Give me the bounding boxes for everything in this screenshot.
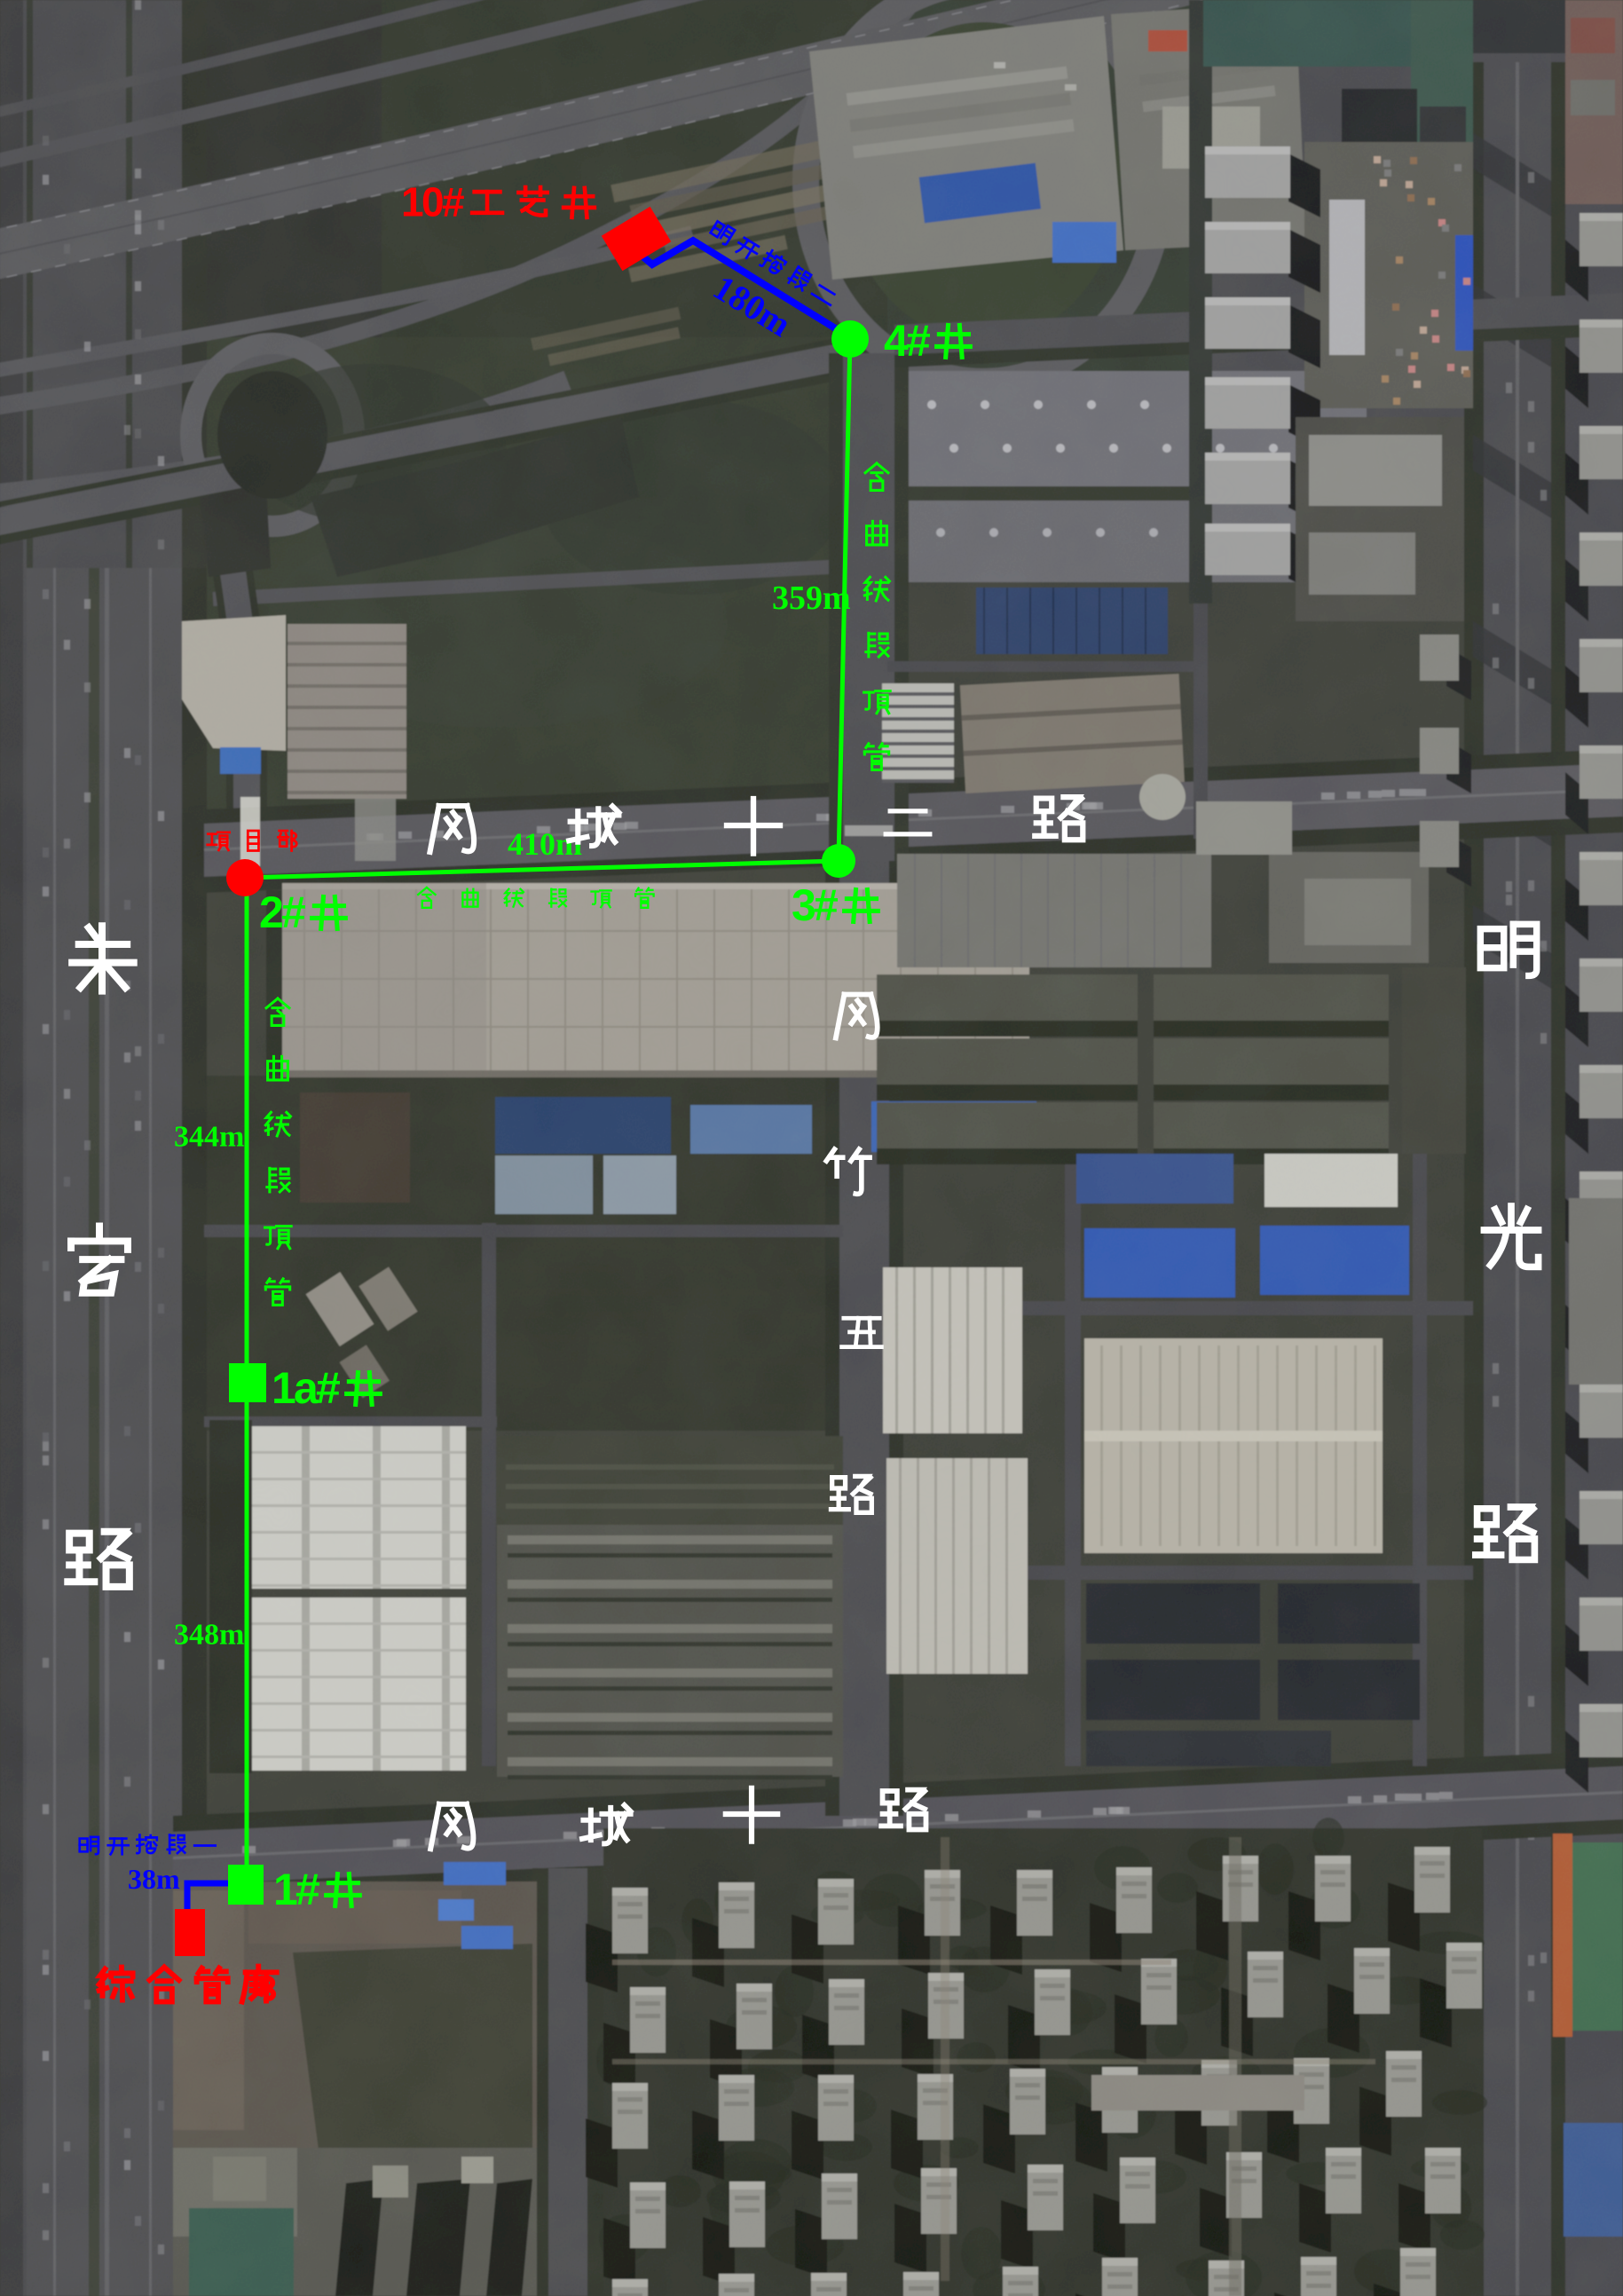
svg-text:m: m	[219, 1619, 244, 1652]
svg-text:1: 1	[273, 1865, 298, 1914]
svg-text:#: #	[295, 1865, 320, 1914]
svg-text:m: m	[219, 1121, 244, 1154]
svg-text:0: 0	[422, 179, 445, 225]
svg-text:#: #	[281, 888, 306, 937]
svg-text:1: 1	[401, 179, 424, 225]
svg-text:8: 8	[204, 1619, 219, 1652]
svg-text:m: m	[156, 1863, 180, 1895]
svg-text:m: m	[823, 580, 851, 617]
svg-text:3: 3	[772, 580, 789, 617]
svg-text:4: 4	[204, 1121, 219, 1154]
svg-text:5: 5	[789, 580, 806, 617]
svg-text:3: 3	[174, 1619, 189, 1652]
svg-text:0: 0	[540, 826, 555, 862]
svg-text:3: 3	[174, 1121, 189, 1154]
svg-text:4: 4	[189, 1619, 204, 1652]
svg-text:4: 4	[189, 1121, 204, 1154]
svg-text:3: 3	[128, 1863, 142, 1895]
svg-text:1: 1	[272, 1363, 296, 1413]
svg-text:9: 9	[806, 580, 823, 617]
svg-text:2: 2	[259, 888, 284, 937]
svg-text:8: 8	[142, 1863, 156, 1895]
svg-text:#: #	[906, 316, 931, 366]
svg-text:1: 1	[524, 826, 540, 862]
svg-text:#: #	[316, 1363, 341, 1413]
svg-text:3: 3	[792, 880, 816, 930]
svg-text:4: 4	[884, 316, 909, 366]
svg-text:#: #	[442, 179, 465, 225]
svg-text:4: 4	[508, 826, 524, 862]
svg-text:#: #	[814, 880, 839, 930]
